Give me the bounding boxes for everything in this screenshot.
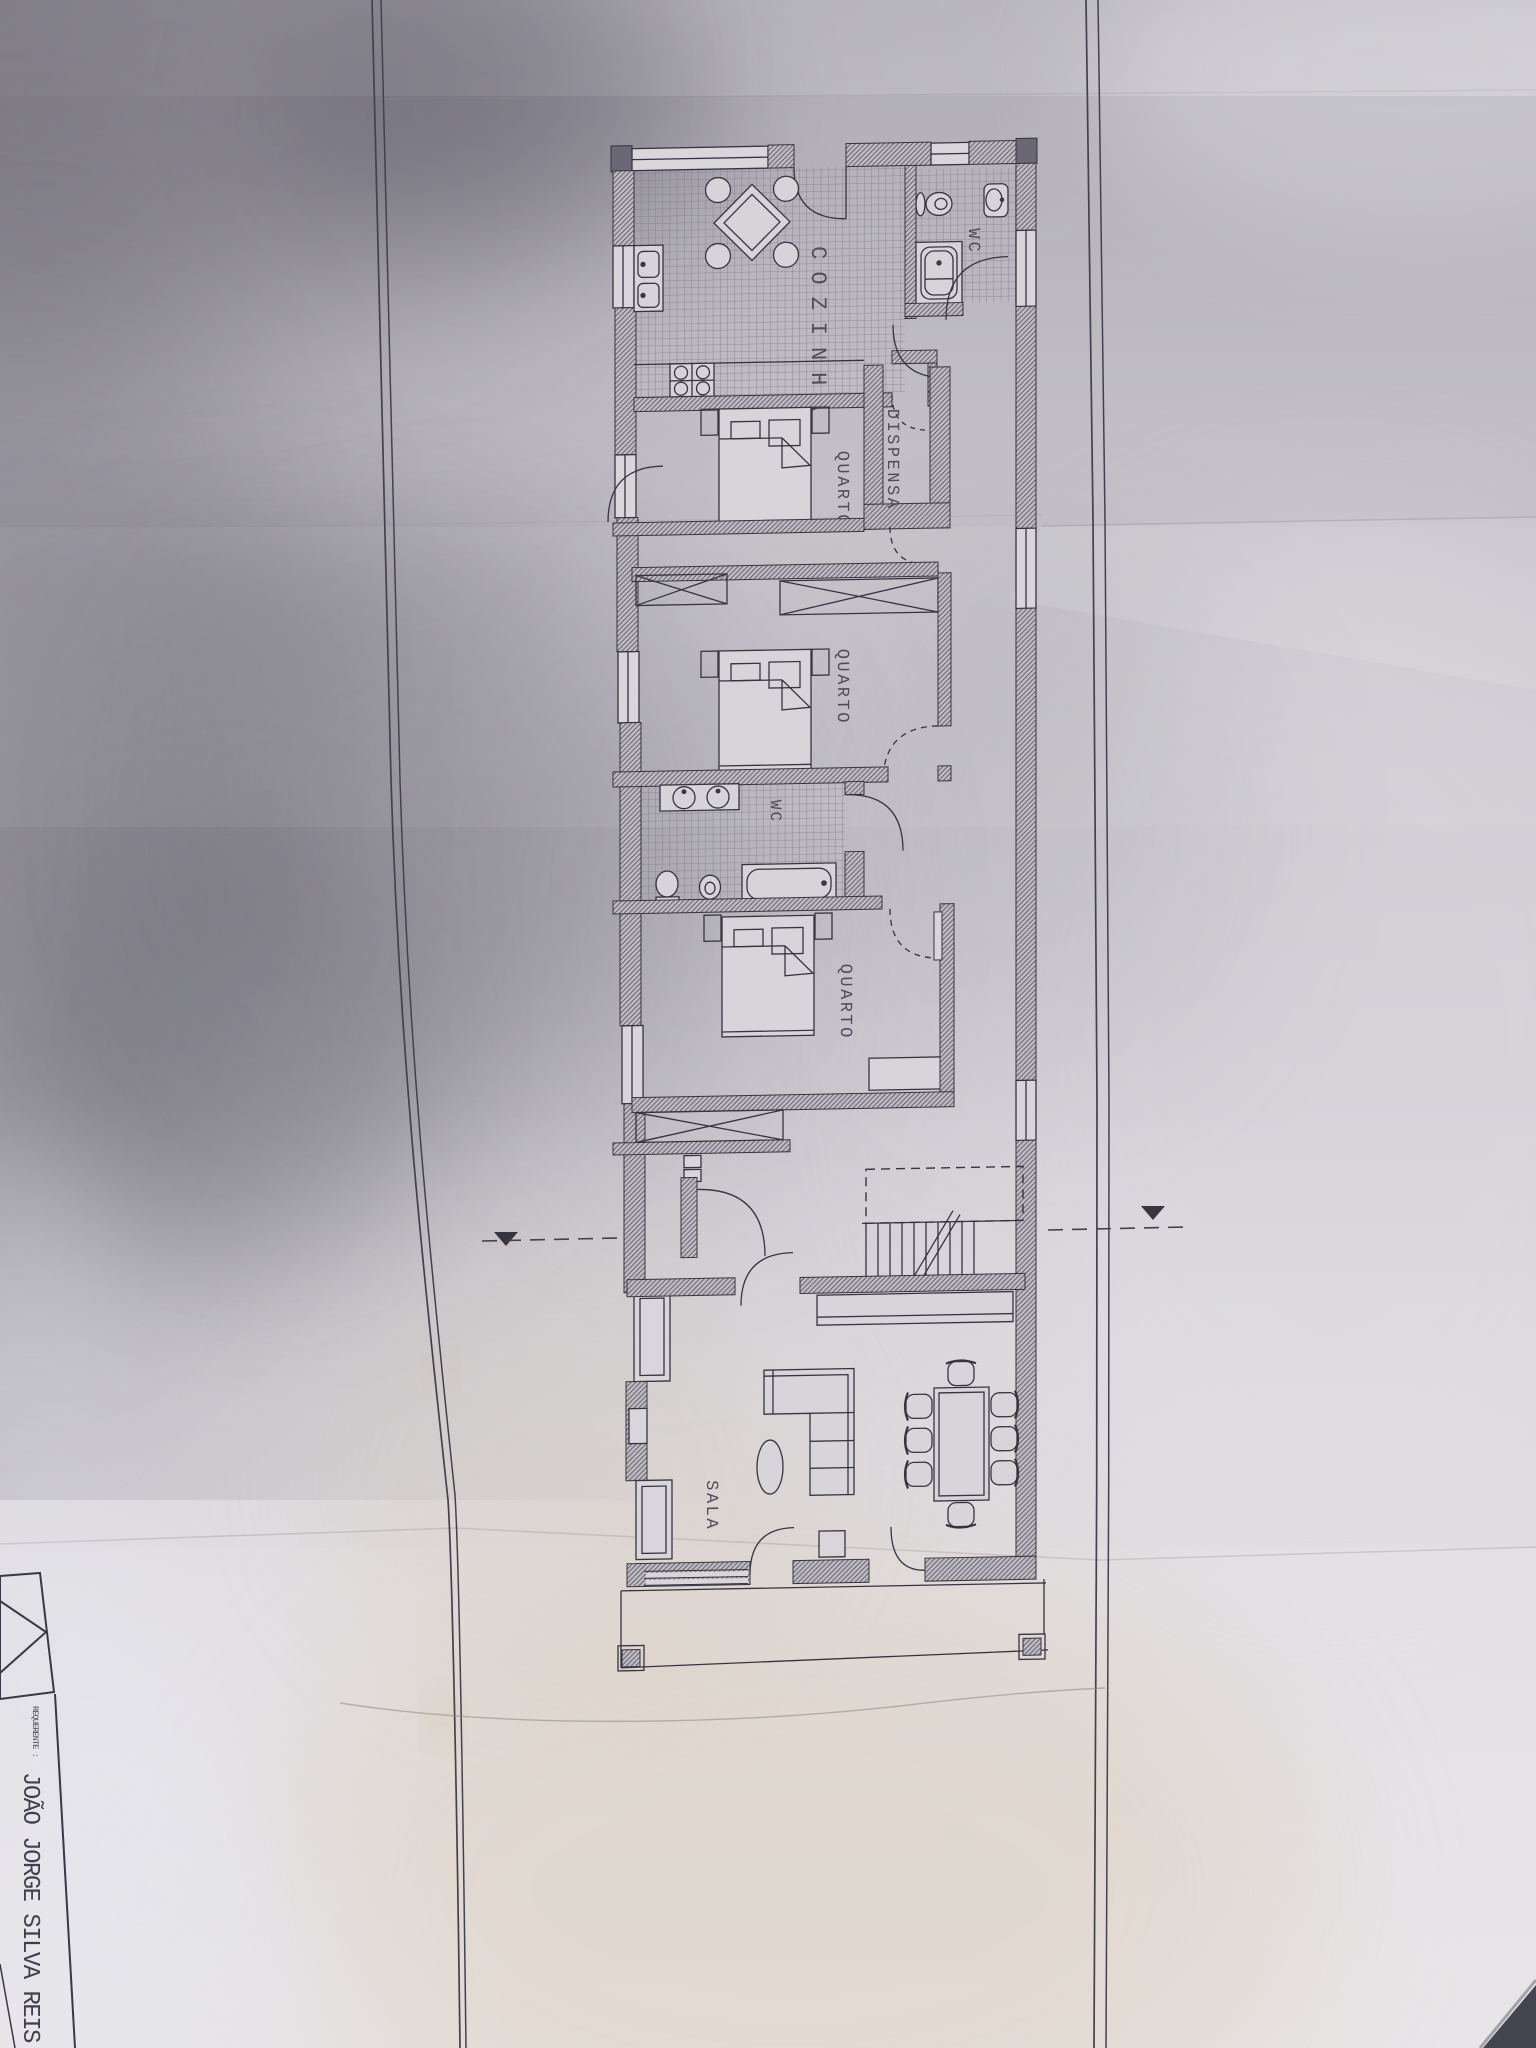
svg-text:SALA: SALA — [701, 1480, 720, 1531]
svg-text:QUARTO: QUARTO — [832, 451, 851, 528]
svg-text:JOÃO JORGE SILVA REIS: JOÃO JORGE SILVA REIS — [16, 1772, 44, 2043]
svg-text:QUARTO: QUARTO — [832, 649, 851, 726]
svg-text:WC: WC — [963, 228, 982, 255]
svg-text:QUARTO: QUARTO — [835, 964, 854, 1041]
svg-text:DISPENSA: DISPENSA — [882, 409, 901, 511]
svg-text:WC: WC — [766, 800, 784, 824]
svg-text:REQUERENTE :: REQUERENTE : — [30, 1706, 40, 1757]
